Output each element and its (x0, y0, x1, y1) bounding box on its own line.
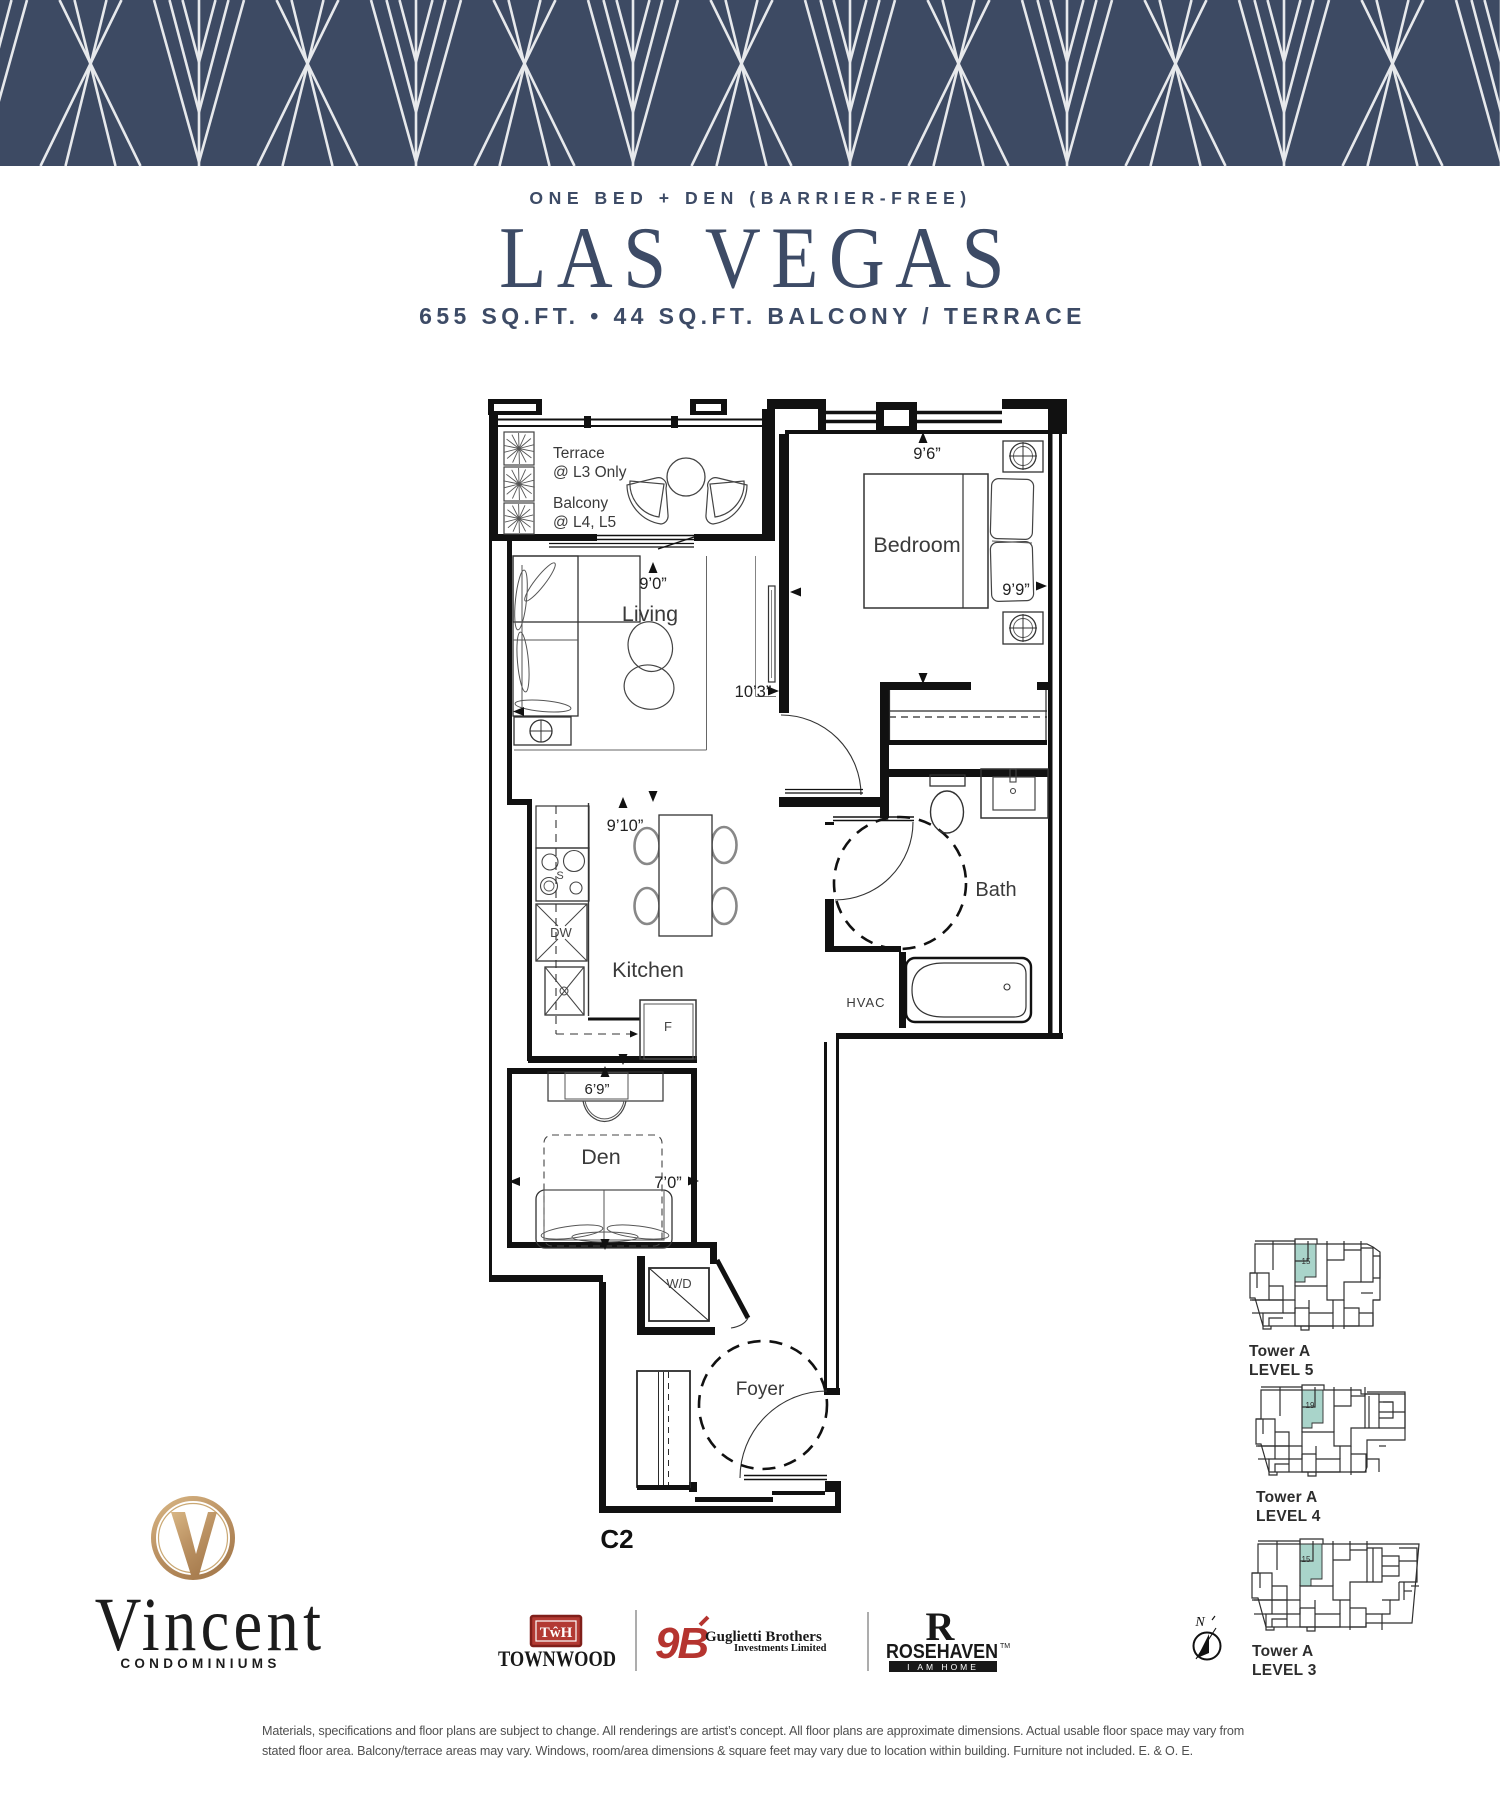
svg-text:S: S (556, 870, 563, 882)
svg-text:Living: Living (622, 602, 678, 626)
svg-text:9B: 9B (655, 1619, 708, 1668)
svg-text:@ L4, L5: @ L4, L5 (553, 514, 616, 531)
svg-text:19: 19 (1306, 1401, 1315, 1410)
svg-text:LEVEL 4: LEVEL 4 (1256, 1508, 1321, 1525)
svg-text:C2: C2 (600, 1524, 633, 1554)
svg-text:TM: TM (1000, 1643, 1010, 1650)
svg-text:10’3”: 10’3” (735, 683, 772, 701)
svg-text:9’9”: 9’9” (1002, 581, 1030, 599)
svg-text:Tower A: Tower A (1256, 1489, 1318, 1506)
svg-text:LAS VEGAS: LAS VEGAS (499, 208, 1015, 306)
svg-text:Investments Limited: Investments Limited (734, 1643, 827, 1654)
svg-text:7’0”: 7’0” (654, 1174, 682, 1192)
svg-text:15: 15 (1302, 1555, 1311, 1564)
svg-text:Den: Den (581, 1145, 620, 1169)
svg-text:@ L3 Only: @ L3 Only (553, 464, 627, 481)
svg-text:Tower A: Tower A (1249, 1343, 1311, 1360)
svg-text:ROSEHAVEN: ROSEHAVEN (886, 1641, 998, 1663)
svg-text:TŵH: TŵH (540, 1625, 573, 1641)
svg-text:9’0”: 9’0” (639, 575, 667, 593)
svg-text:TOWNWOOD: TOWNWOOD (498, 1646, 616, 1671)
svg-text:W/D: W/D (666, 1276, 691, 1291)
svg-text:CONDOMINIUMS: CONDOMINIUMS (120, 1656, 280, 1671)
svg-text:Foyer: Foyer (736, 1379, 785, 1400)
svg-text:N: N (1194, 1615, 1205, 1630)
svg-text:I AM HOME: I AM HOME (907, 1662, 979, 1672)
svg-text:DW: DW (550, 925, 572, 940)
svg-text:9’6”: 9’6” (913, 445, 941, 463)
svg-text:Bath: Bath (975, 879, 1016, 901)
svg-text:6’9”: 6’9” (584, 1081, 609, 1098)
svg-text:Balcony: Balcony (553, 495, 608, 512)
svg-text:LEVEL 5: LEVEL 5 (1249, 1362, 1314, 1379)
svg-text:9’10”: 9’10” (607, 817, 644, 835)
svg-text:Materials, specifications and: Materials, specifications and floor plan… (262, 1724, 1244, 1738)
svg-text:Terrace: Terrace (553, 445, 605, 462)
svg-text:655 SQ.FT. • 44 SQ.FT. BALCONY: 655 SQ.FT. • 44 SQ.FT. BALCONY / TERRACE (419, 303, 1086, 329)
svg-text:Tower A: Tower A (1252, 1643, 1314, 1660)
svg-text:LEVEL 3: LEVEL 3 (1252, 1662, 1317, 1679)
svg-text:Vincent: Vincent (95, 1583, 326, 1667)
svg-text:HVAC: HVAC (846, 995, 885, 1010)
svg-text:ONE BED + DEN (BARRIER-FREE): ONE BED + DEN (BARRIER-FREE) (529, 188, 971, 208)
svg-text:F: F (664, 1019, 672, 1034)
svg-text:15: 15 (1302, 1257, 1311, 1266)
svg-text:Kitchen: Kitchen (612, 958, 684, 982)
svg-text:stated floor area. Balcony/ter: stated floor area. Balcony/terrace areas… (262, 1744, 1193, 1758)
svg-text:Bedroom: Bedroom (873, 533, 960, 557)
